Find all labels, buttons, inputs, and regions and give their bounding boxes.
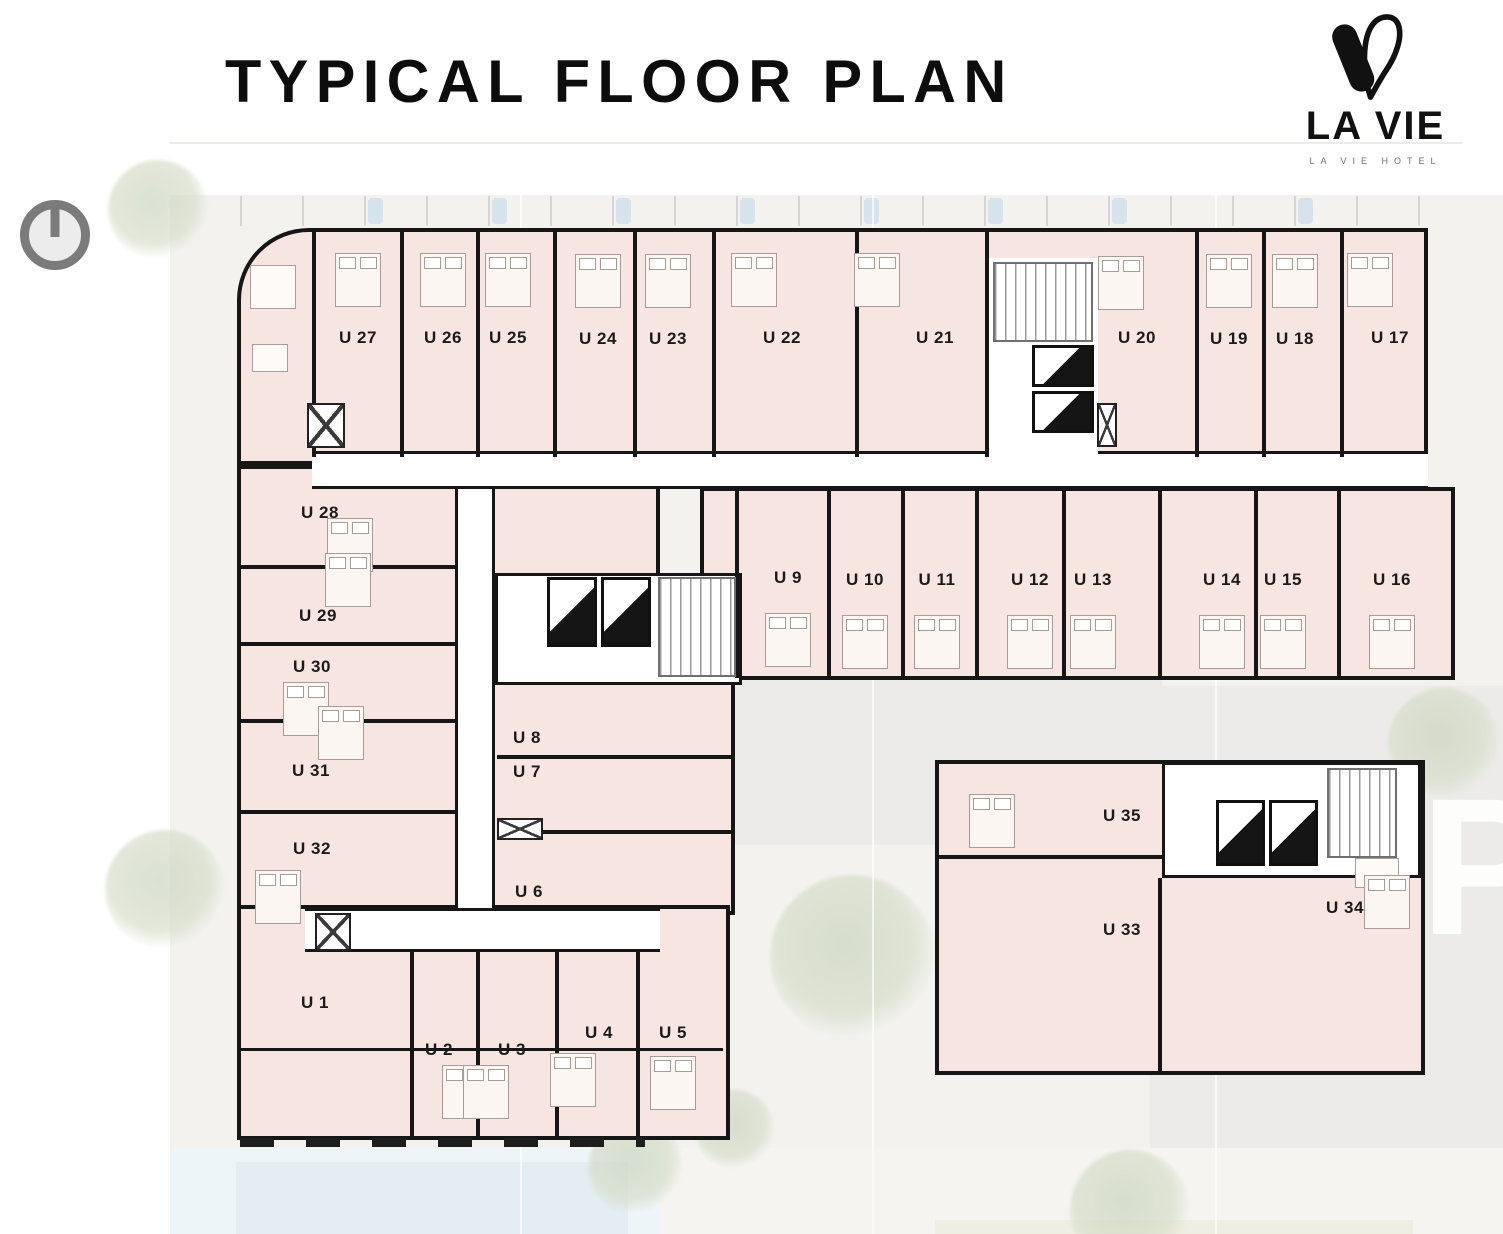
unit-label-u14: U 14 <box>1203 570 1241 590</box>
lavie-v-icon <box>1311 12 1441 108</box>
unit-label-u4: U 4 <box>585 1023 613 1043</box>
elevator-icon <box>1032 391 1094 433</box>
unit-label-u23: U 23 <box>649 329 687 349</box>
bed-icon <box>1098 256 1144 310</box>
shaft-icon <box>497 818 543 840</box>
interior-wall <box>985 232 989 457</box>
unit-label-u21: U 21 <box>916 328 954 348</box>
interior-wall <box>1062 491 1066 678</box>
bed-icon <box>842 615 888 669</box>
unit-label-u25: U 25 <box>489 328 527 348</box>
interior-wall <box>633 232 637 457</box>
unit-label-u32: U 32 <box>293 839 331 859</box>
corridor-west <box>455 489 495 910</box>
shaft-icon <box>1097 403 1117 447</box>
car-icon <box>1112 198 1127 224</box>
unit-label-u10: U 10 <box>846 570 884 590</box>
interior-wall <box>553 232 557 457</box>
bed-icon <box>1369 615 1415 669</box>
interior-wall <box>1158 878 1162 1072</box>
unit-label-u34: U 34 <box>1326 898 1364 918</box>
unit-label-u31: U 31 <box>292 761 330 781</box>
bed-icon <box>318 706 364 760</box>
unit-label-u17: U 17 <box>1371 328 1409 348</box>
unit-label-u3: U 3 <box>498 1040 526 1060</box>
floor-plan-poster: TYPICAL FLOOR PLAN LA VIE LA VIE HOTEL P… <box>0 0 1503 1234</box>
logo-name: LA VIE <box>1288 104 1463 149</box>
block-mid-column <box>490 675 735 915</box>
interior-wall <box>410 952 414 1137</box>
unit-label-u35: U 35 <box>1103 806 1141 826</box>
unit-label-u6: U 6 <box>515 882 543 902</box>
bed-icon <box>765 613 811 667</box>
unit-label-u20: U 20 <box>1118 328 1156 348</box>
bed-icon <box>1070 615 1116 669</box>
bed-icon <box>420 253 466 307</box>
elevator-icon <box>1032 345 1094 387</box>
bed-icon <box>335 253 381 307</box>
stairs-icon <box>993 262 1093 342</box>
car-icon <box>616 198 631 224</box>
unit-label-u13: U 13 <box>1074 570 1112 590</box>
bed-icon <box>645 254 691 308</box>
page-title: TYPICAL FLOOR PLAN <box>225 46 1014 116</box>
interior-wall <box>476 232 480 457</box>
elevator-icon <box>601 577 651 647</box>
interior-wall <box>1340 232 1344 457</box>
unit-label-u30: U 30 <box>293 657 331 677</box>
unit-label-u2: U 2 <box>425 1040 453 1060</box>
unit-label-u28: U 28 <box>301 503 339 523</box>
north-needle <box>51 207 60 237</box>
interior-wall <box>555 952 559 1137</box>
bed-icon <box>255 870 301 924</box>
interior-wall <box>1337 491 1341 678</box>
unit-label-u12: U 12 <box>1011 570 1049 590</box>
stairs-icon <box>658 577 736 677</box>
interior-wall <box>400 232 404 457</box>
car-icon <box>1298 198 1313 224</box>
north-indicator-icon <box>20 200 90 270</box>
elevator-icon <box>1216 800 1265 866</box>
bed-icon <box>1260 615 1306 669</box>
bed-icon <box>914 615 960 669</box>
unit-label-u26: U 26 <box>424 328 462 348</box>
parking-stalls <box>240 196 1432 226</box>
bed-icon <box>969 794 1015 848</box>
unit-label-u11: U 11 <box>919 570 956 590</box>
balcony-walls <box>240 1138 645 1147</box>
interior-wall <box>975 491 979 678</box>
unit-label-u7: U 7 <box>513 762 541 782</box>
interior-wall <box>901 491 905 678</box>
bed-icon <box>650 1056 696 1110</box>
shaft-icon <box>307 403 345 448</box>
bed-icon <box>1199 615 1245 669</box>
bed-icon <box>1007 615 1053 669</box>
unit-label-u24: U 24 <box>579 329 617 349</box>
interior-wall <box>241 642 457 646</box>
interior-wall <box>636 952 640 1137</box>
unit-label-u27: U 27 <box>339 328 377 348</box>
car-icon <box>492 198 507 224</box>
corridor-south <box>305 908 660 952</box>
bed-icon <box>485 253 531 307</box>
bed-icon <box>1206 254 1252 308</box>
elevator-icon <box>547 577 597 647</box>
lobby-table <box>252 344 288 372</box>
interior-wall <box>1158 491 1162 678</box>
title-divider <box>170 142 1462 144</box>
interior-wall <box>827 491 831 678</box>
bed-icon <box>575 254 621 308</box>
interior-wall <box>1262 232 1266 457</box>
parking-watermark: P <box>1420 770 1503 965</box>
unit-label-u16: U 16 <box>1373 570 1411 590</box>
unit-label-u1: U 1 <box>301 993 329 1013</box>
bed-icon <box>1272 254 1318 308</box>
unit-label-u29: U 29 <box>299 606 337 626</box>
interior-wall <box>241 1048 723 1051</box>
bed-icon <box>1364 875 1410 929</box>
bed-icon <box>463 1065 509 1119</box>
pool <box>236 1162 628 1234</box>
tree-icon <box>770 875 935 1040</box>
unit-label-u5: U 5 <box>659 1023 687 1043</box>
unit-label-u9: U 9 <box>774 568 802 588</box>
car-icon <box>740 198 755 224</box>
bed-icon <box>1347 253 1393 307</box>
bed-icon <box>325 553 371 607</box>
unit-label-u15: U 15 <box>1264 570 1302 590</box>
interior-wall <box>1254 491 1258 678</box>
interior-wall <box>1195 232 1199 457</box>
unit-label-u22: U 22 <box>763 328 801 348</box>
shaft-icon <box>315 913 351 951</box>
unit-label-u18: U 18 <box>1276 329 1314 349</box>
stairs-icon <box>1327 768 1397 858</box>
lobby-sofa <box>250 265 296 309</box>
interior-wall <box>939 855 1162 859</box>
tree-icon <box>108 160 208 260</box>
interior-wall <box>712 232 716 457</box>
unit-label-u19: U 19 <box>1210 329 1248 349</box>
elevator-icon <box>1269 800 1318 866</box>
tree-icon <box>105 830 225 950</box>
interior-wall <box>241 810 457 814</box>
brand-logo: LA VIE LA VIE HOTEL <box>1288 12 1463 166</box>
unit-label-u8: U 8 <box>513 728 541 748</box>
interior-wall <box>497 755 732 759</box>
bed-icon <box>550 1053 596 1107</box>
car-icon <box>988 198 1003 224</box>
car-icon <box>368 198 383 224</box>
unit-label-u33: U 33 <box>1103 920 1141 940</box>
bed-icon <box>731 253 777 307</box>
bed-icon <box>854 253 900 307</box>
logo-subtitle: LA VIE HOTEL <box>1288 156 1463 166</box>
